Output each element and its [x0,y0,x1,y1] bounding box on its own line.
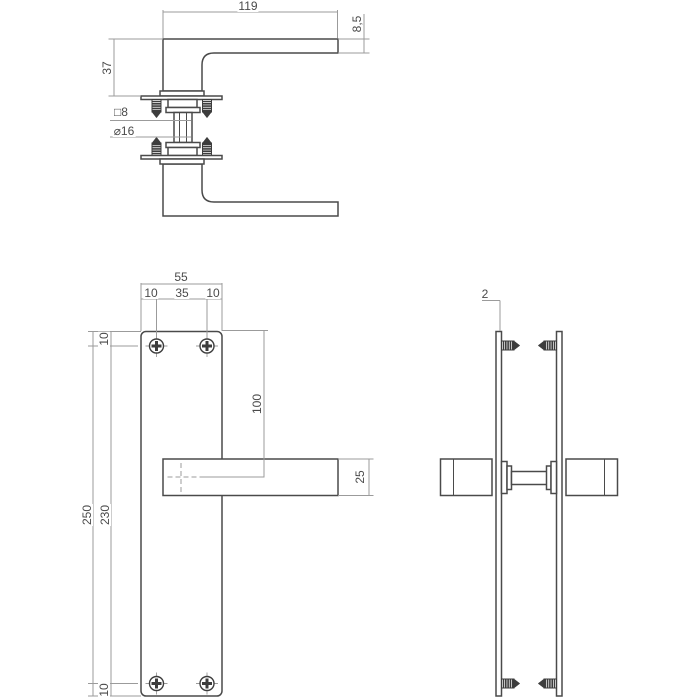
left-lever-end [441,459,493,496]
right-rose-ring [551,462,557,494]
dim-label-handle-height: 25 [354,469,366,484]
screw-icon [538,341,556,350]
spindle-bar [512,472,548,485]
dim-label-screw-distance: 230 [99,504,111,526]
dim-label-margin-right: 10 [205,287,220,299]
backplate-side-view [441,301,618,697]
dim-label-bar-thickness: 8,5 [351,14,363,33]
dim-lines-top-view [109,10,370,137]
lever-assembly-side-view [109,10,370,216]
screw-icon [502,341,520,350]
backplate-front-view [88,283,374,696]
right-plate-edge [557,332,563,697]
screw-icon [502,679,520,688]
dim-label-plate-width: 55 [173,271,188,283]
dim-label-spindle-square: □8 [113,106,129,118]
dim-label-neck-diameter: ⌀16 [113,125,136,137]
backplate [141,332,222,697]
dim-label-plate-height: 250 [81,504,93,526]
technical-drawing-canvas: 119 8,5 37 □8 ⌀16 55 10 35 10 10 250 230… [0,0,700,700]
screw-icon [203,100,212,118]
dim-label-handle-offset: 100 [251,393,263,415]
screw-icon [152,137,161,155]
screw-icon [203,137,212,155]
dim-lines-side-view [482,301,500,332]
dim-label-margin-top: 10 [98,331,110,346]
dim-label-margin-bottom: 10 [98,682,110,697]
screw-icon [152,100,161,118]
lower-lever [163,164,338,216]
left-plate-edge [496,332,502,697]
dim-label-plate-thickness: 2 [481,288,490,300]
right-lever-end [566,459,618,496]
upper-lever [163,39,338,91]
lower-hub-flange [160,159,204,164]
upper-collar [168,100,197,108]
spindle-cylinder [174,113,192,143]
dim-label-margin-left: 10 [143,287,158,299]
dim-label-screw-spacing: 35 [174,287,189,299]
dim-label-length: 119 [237,0,258,12]
screw-icon [538,679,556,688]
drawing-linework [0,0,700,700]
lower-collar [168,148,197,156]
dim-label-projection: 37 [101,60,113,75]
left-rose-ring [502,462,508,494]
